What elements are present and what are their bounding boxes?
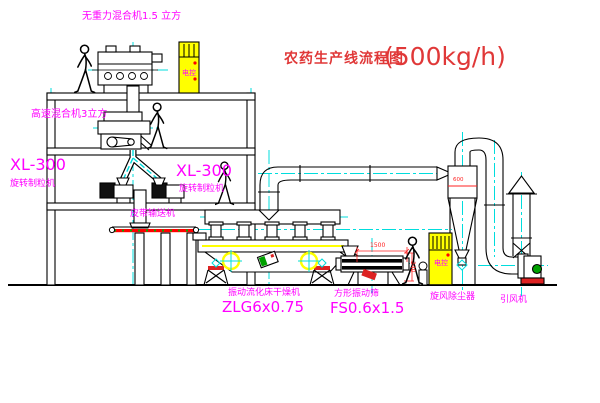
label-granulator-left-model: XL-300 (10, 157, 66, 173)
label-granulator-right-name: 旋转制粒机 (179, 185, 224, 194)
label-sieve-name: 方形振动筛 (334, 290, 379, 299)
label-belt-conveyor: 皮带输送机 (130, 210, 175, 219)
label-dryer-model: ZLG6x0.75 (222, 300, 304, 315)
gravity-free-mixer (92, 46, 162, 113)
control-cabinet-top (179, 42, 199, 93)
label-granulator-right-model: XL-300 (176, 163, 232, 179)
label-cabinet-top: 电控 (182, 70, 196, 77)
dim-sieve-length: 1500 (370, 243, 385, 249)
label-granulator-left-name: 旋转制粒机 (10, 180, 55, 189)
pesticide-production-line-drawing: 无重力混合机1.5 立方 高速混合机3立方 XL-300 旋转制粒机 XL-30… (0, 0, 600, 403)
dim-cyclone: 600 (453, 178, 464, 184)
small-motor (419, 262, 427, 285)
label-cyclone: 旋风除尘器 (430, 293, 475, 302)
worker-top-floor (74, 45, 94, 92)
dim-sieve-height: 340 (409, 261, 415, 272)
label-dryer-name: 振动流化床干燥机 (228, 289, 300, 298)
discharge-chutes (135, 233, 196, 285)
induced-draft-fan (518, 254, 544, 284)
page-title-capacity: (500kg/h) (384, 44, 506, 69)
label-fan: 引风机 (500, 296, 527, 305)
label-gravity-mixer: 无重力混合机1.5 立方 (82, 12, 181, 22)
belt-conveyor (109, 227, 198, 233)
square-vibrating-sieve (336, 246, 414, 285)
label-high-speed-mixer: 高速混合机3立方 (31, 110, 107, 120)
label-sieve-model: FS0.6x1.5 (330, 301, 404, 316)
label-cabinet-right: 电控 (434, 260, 448, 267)
